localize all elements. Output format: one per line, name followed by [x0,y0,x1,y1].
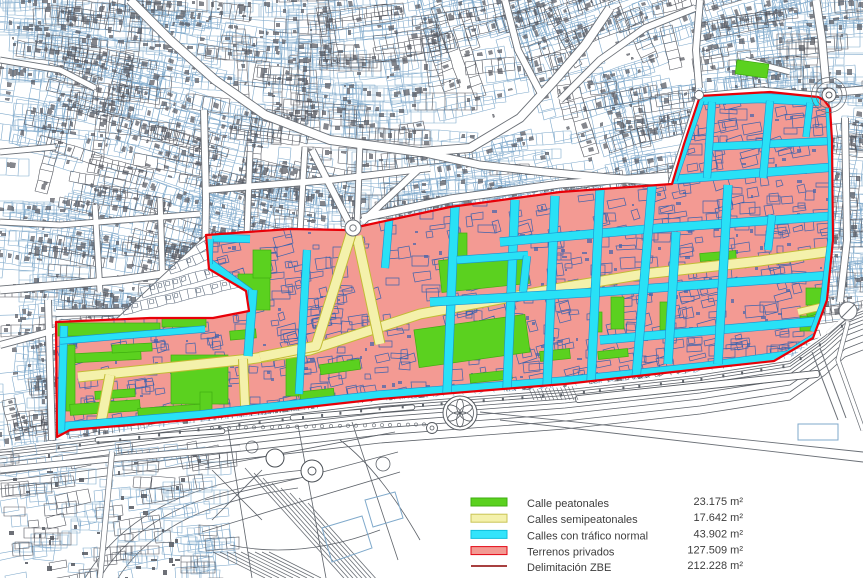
svg-text:Calles semipeatonales: Calles semipeatonales [527,514,638,526]
svg-text:Calle peatonales: Calle peatonales [527,498,609,510]
svg-text:23.175 m²: 23.175 m² [693,496,743,508]
svg-text:Terrenos privados: Terrenos privados [527,547,615,559]
svg-text:212.228 m²: 212.228 m² [687,560,743,572]
svg-text:127.509 m²: 127.509 m² [687,545,743,557]
svg-text:Calles con tráfico normal: Calles con tráfico normal [527,530,648,542]
svg-text:17.642 m²: 17.642 m² [693,512,743,524]
svg-text:Delimitación ZBE: Delimitación ZBE [527,562,611,574]
svg-text:43.902 m²: 43.902 m² [693,528,743,540]
